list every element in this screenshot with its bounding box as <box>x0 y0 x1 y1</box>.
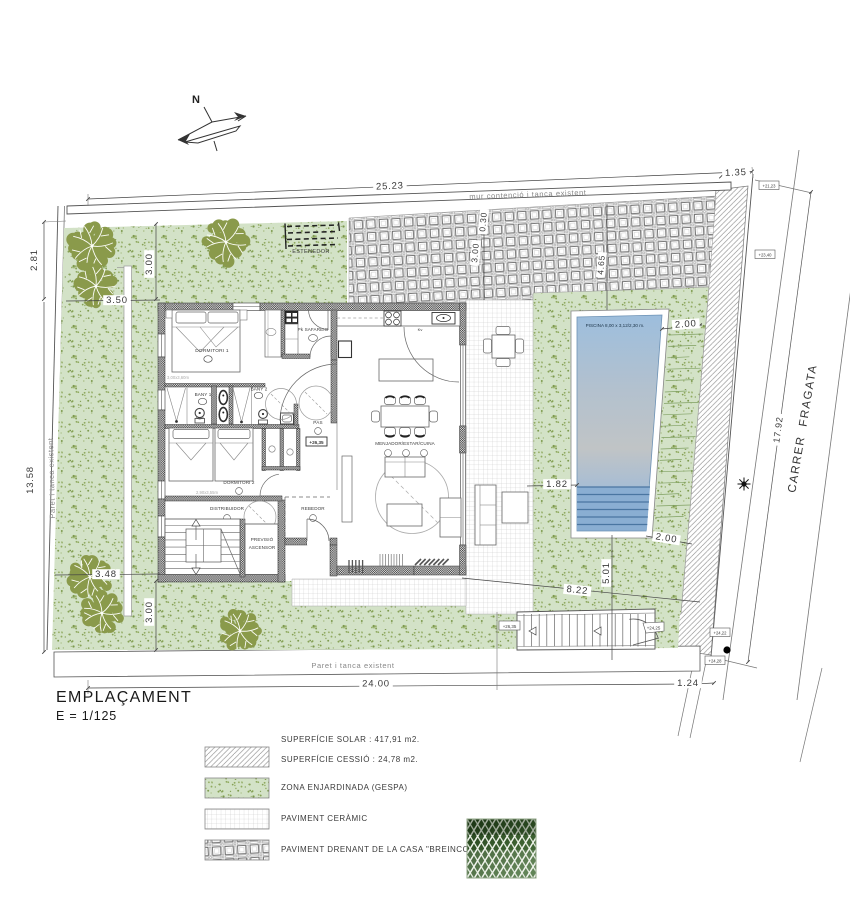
svg-text:EMPLAÇAMENT: EMPLAÇAMENT <box>56 689 192 706</box>
svg-text:DORMITORI 2: DORMITORI 2 <box>223 480 254 485</box>
svg-text:DISTRIBUIDOR: DISTRIBUIDOR <box>210 506 245 511</box>
svg-text:ESTENEDOR: ESTENEDOR <box>292 249 330 255</box>
svg-text:PISCINA 8,00 x 3,12/2,30 m.: PISCINA 8,00 x 3,12/2,30 m. <box>586 323 645 328</box>
svg-text:Pk SAFAREIG: Pk SAFAREIG <box>298 327 329 332</box>
svg-text:3.00: 3.00 <box>144 253 155 275</box>
svg-text:REBEDOR: REBEDOR <box>301 506 325 511</box>
svg-text:1.24: 1.24 <box>677 678 699 689</box>
svg-text:MENJADOR/ESTAR/CUINA: MENJADOR/ESTAR/CUINA <box>375 441 435 446</box>
svg-text:Paret i tanca existent: Paret i tanca existent <box>311 661 395 670</box>
svg-text:+24,25: +24,25 <box>647 626 661 631</box>
svg-text:+24,22: +24,22 <box>714 631 728 636</box>
svg-text:1.35: 1.35 <box>725 167 747 179</box>
svg-text:+26,35: +26,35 <box>503 624 517 629</box>
svg-text:SUPERFÍCIE CESSIÓ : 24,78 m2.: SUPERFÍCIE CESSIÓ : 24,78 m2. <box>281 755 418 764</box>
svg-text:E = 1/125: E = 1/125 <box>56 709 117 723</box>
svg-text:N: N <box>192 94 200 106</box>
svg-text:0.30: 0.30 <box>477 211 489 232</box>
svg-text:Kv: Kv <box>418 327 423 332</box>
svg-text:PREVISIÓ: PREVISIÓ <box>251 536 274 542</box>
svg-text:PAVIMENT DRENANT DE LA CASA "B: PAVIMENT DRENANT DE LA CASA "BREINCO" <box>281 845 473 854</box>
svg-text:3.48: 3.48 <box>95 569 117 580</box>
svg-text:DORMITORI 1: DORMITORI 1 <box>195 348 229 354</box>
svg-text:24.00: 24.00 <box>362 679 390 690</box>
svg-text:+21,23: +21,23 <box>763 184 777 189</box>
svg-text:3.00: 3.00 <box>144 601 155 623</box>
svg-text:4.65: 4.65 <box>595 254 607 275</box>
svg-text:SUPERFÍCIE SOLAR : 417,91 m2.: SUPERFÍCIE SOLAR : 417,91 m2. <box>281 735 420 744</box>
svg-text:+23,40: +23,40 <box>759 253 773 258</box>
svg-text:+24,28: +24,28 <box>709 659 723 664</box>
svg-text:25.23: 25.23 <box>376 180 404 192</box>
svg-text:PAS: PAS <box>313 420 322 425</box>
svg-text:BANY 1: BANY 1 <box>195 392 212 397</box>
svg-text:3.50: 3.50 <box>106 295 128 306</box>
svg-text:BANY 2: BANY 2 <box>251 387 268 392</box>
svg-text:ASCENSOR: ASCENSOR <box>249 545 276 550</box>
svg-text:2.81: 2.81 <box>29 249 40 271</box>
svg-text:5.01: 5.01 <box>601 562 612 584</box>
svg-text:3,00x3,60m: 3,00x3,60m <box>167 375 189 380</box>
svg-text:13.58: 13.58 <box>25 466 36 494</box>
svg-text:1.82: 1.82 <box>546 479 568 490</box>
svg-text:2,90x3,55m: 2,90x3,55m <box>196 490 218 495</box>
svg-text:8.22: 8.22 <box>566 584 589 597</box>
svg-text:ZONA ENJARDINADA (GESPA): ZONA ENJARDINADA (GESPA) <box>281 783 408 792</box>
svg-text:3.00: 3.00 <box>469 242 481 263</box>
svg-text:2.00: 2.00 <box>675 318 697 330</box>
svg-text:PAVIMENT CERÀMIC: PAVIMENT CERÀMIC <box>281 814 368 823</box>
svg-text:+26,35: +26,35 <box>309 440 324 445</box>
